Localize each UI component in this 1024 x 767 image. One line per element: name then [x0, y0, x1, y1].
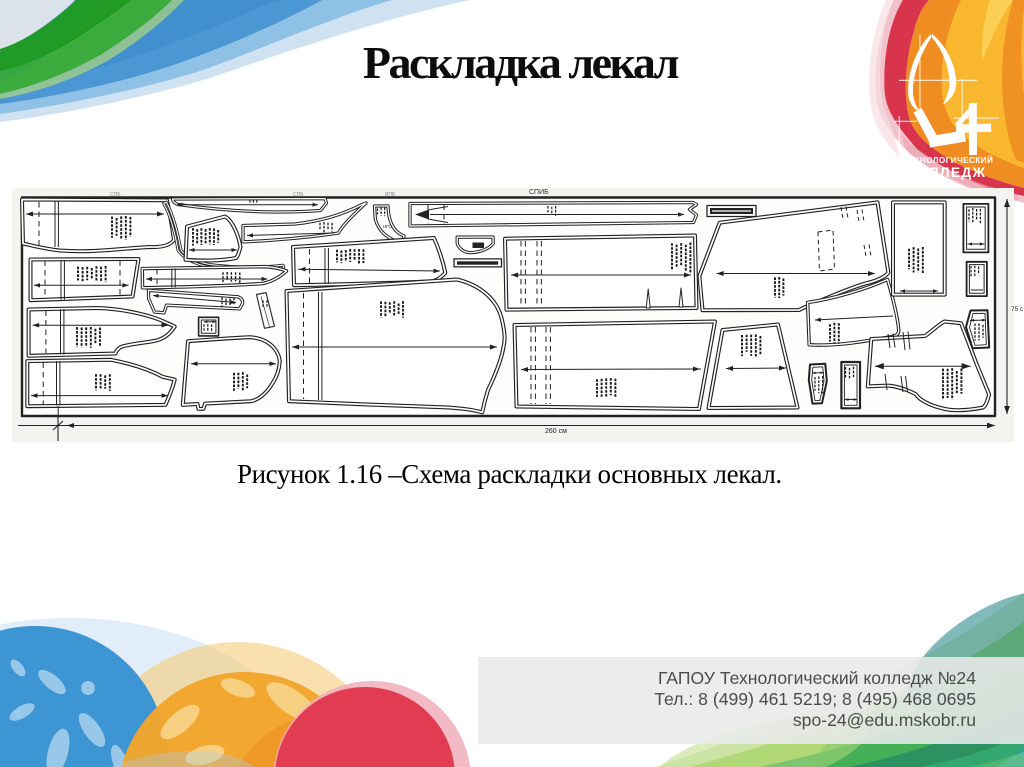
svg-text:ТЕХНОЛОГИЧЕСКИЙ: ТЕХНОЛОГИЧЕСКИЙ: [903, 154, 994, 165]
svg-text:КОЛЛЕДЖ: КОЛЛЕДЖ: [908, 165, 987, 180]
svg-text:НГО: НГО: [383, 224, 392, 229]
svg-text:75 с: 75 с: [1011, 306, 1024, 313]
svg-text:ВПБ: ВПБ: [385, 192, 396, 198]
svg-text:СПБ: СПБ: [110, 192, 121, 198]
svg-text:260 см: 260 см: [545, 428, 567, 435]
svg-text:СПИБ: СПИБ: [529, 189, 549, 196]
